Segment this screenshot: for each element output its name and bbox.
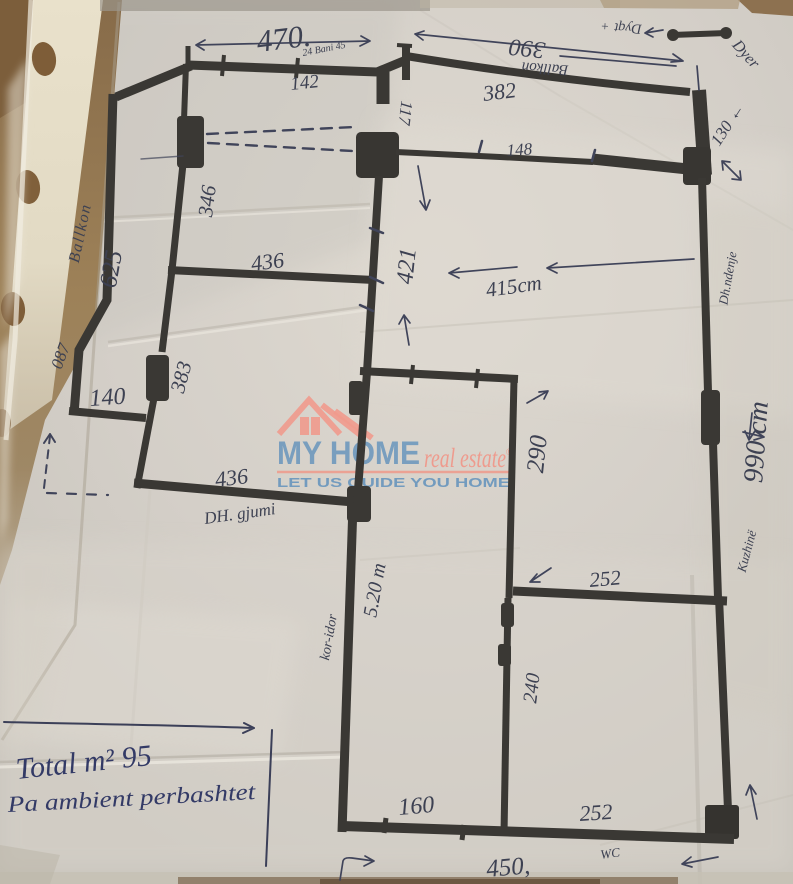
svg-text:390: 390: [508, 33, 548, 63]
svg-text:real estate: real estate: [424, 443, 506, 473]
svg-text:160: 160: [397, 792, 435, 821]
svg-text:346: 346: [193, 183, 221, 219]
svg-text:148: 148: [506, 139, 533, 160]
svg-text:240: 240: [519, 672, 544, 704]
svg-text:WC: WC: [599, 844, 621, 862]
svg-text:252: 252: [579, 799, 614, 826]
svg-text:140: 140: [89, 384, 127, 412]
svg-text:252: 252: [588, 565, 622, 592]
svg-text:+: +: [600, 19, 610, 34]
svg-text:Dyqt: Dyqt: [613, 19, 643, 36]
svg-text:990 cm: 990 cm: [738, 400, 775, 484]
svg-text:Ballkon: Ballkon: [521, 58, 569, 77]
svg-text:450,: 450,: [485, 852, 531, 883]
svg-text:117: 117: [394, 100, 416, 128]
svg-text:382: 382: [481, 77, 518, 106]
svg-text:290: 290: [522, 433, 553, 474]
svg-text:436: 436: [250, 247, 286, 276]
svg-text:MY HOME: MY HOME: [277, 435, 420, 471]
svg-text:142: 142: [289, 71, 320, 95]
svg-text:LET US GUIDE YOU HOME: LET US GUIDE YOU HOME: [277, 475, 510, 490]
svg-text:436: 436: [214, 463, 250, 492]
svg-text:421: 421: [392, 247, 422, 286]
